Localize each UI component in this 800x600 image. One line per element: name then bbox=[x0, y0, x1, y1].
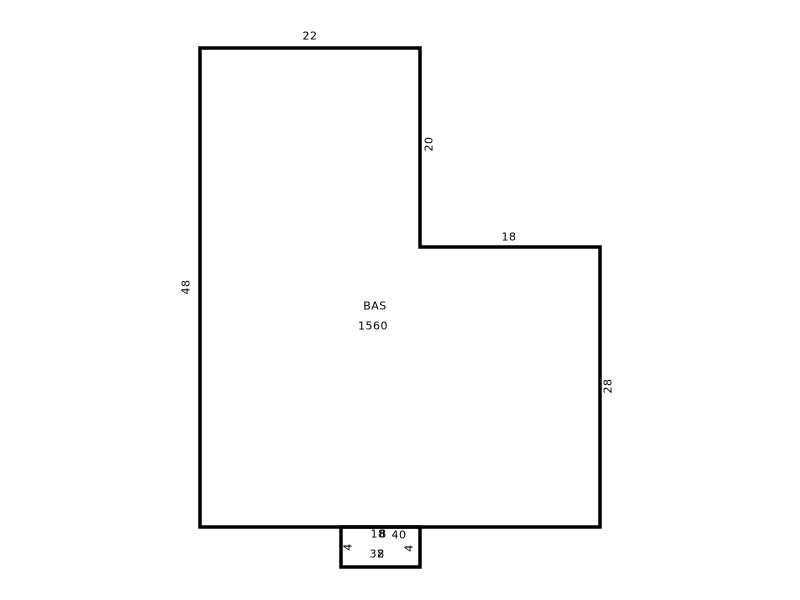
dim-stoop-bottom-overlap: 8 bbox=[377, 549, 385, 560]
dim-stoop-left: 4 bbox=[343, 543, 354, 551]
dim-top: 22 bbox=[303, 31, 318, 42]
dim-left: 48 bbox=[181, 280, 192, 295]
dim-stoop-right: 4 bbox=[404, 544, 415, 552]
area-size-bas: 1560 bbox=[358, 321, 388, 332]
dim-upper-right-vertical: 20 bbox=[424, 137, 435, 152]
dim-step: 18 bbox=[502, 232, 517, 243]
sketch-canvas: BAS156022201848284018844328 bbox=[0, 0, 800, 600]
labels-layer: BAS156022201848284018844328 bbox=[0, 0, 800, 600]
dim-bottom: 40 bbox=[392, 530, 407, 541]
dim-lower-right: 28 bbox=[603, 379, 614, 394]
area-name-bas: BAS bbox=[363, 301, 387, 312]
dim-stoop-top-overlap: 8 bbox=[379, 529, 387, 540]
